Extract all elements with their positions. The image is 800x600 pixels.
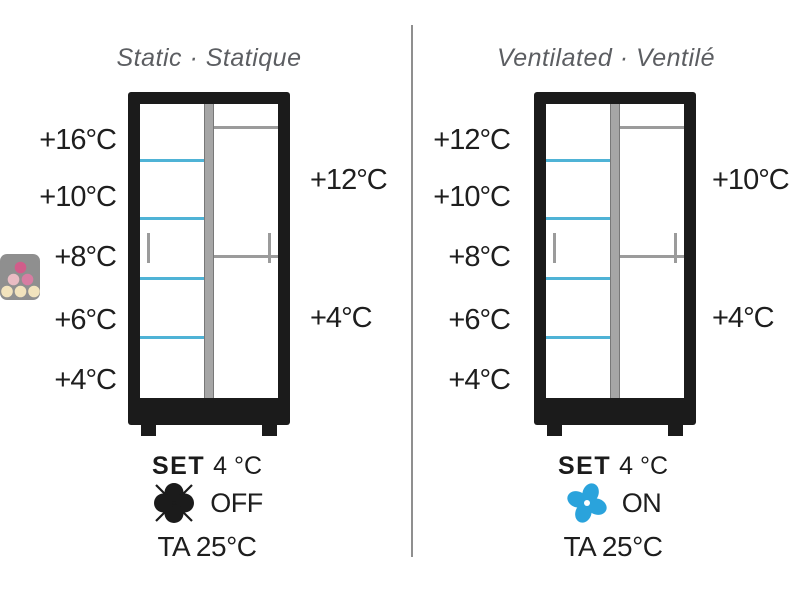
set-label: SET — [152, 452, 205, 480]
fan-state-label: OFF — [210, 488, 263, 519]
cabinet-foot — [141, 425, 156, 436]
fan-status: ON — [503, 480, 723, 526]
set-value: 4 °C — [213, 452, 262, 480]
temp-label: +4°C — [310, 303, 400, 333]
ambient-temperature: TA 25°C — [503, 531, 723, 563]
temp-label: +10°C — [412, 182, 510, 212]
cabinet-foot — [547, 425, 562, 436]
sliding-door-bar — [204, 104, 214, 398]
blue-shelf — [546, 159, 610, 162]
temp-label: +4°C — [412, 365, 510, 395]
grey-shelf — [214, 126, 278, 129]
temp-label: +10°C — [18, 182, 116, 212]
blue-shelf — [546, 277, 610, 280]
door-handle — [674, 233, 677, 263]
blue-shelf — [546, 336, 610, 339]
fan-status: OFF — [97, 480, 317, 526]
temp-label: +4°C — [18, 365, 116, 395]
set-temperature: SET4 °C — [97, 452, 317, 481]
temp-label: +10°C — [712, 165, 800, 195]
blue-shelf — [140, 159, 204, 162]
ambient-temperature: TA 25°C — [97, 531, 317, 563]
fan-on-icon — [565, 481, 609, 525]
temp-label: +6°C — [18, 305, 116, 335]
panel-title: Static · Statique — [89, 44, 329, 73]
wine-cabinet-ventilated — [534, 92, 696, 425]
blue-shelf — [546, 217, 610, 220]
cabinet-interior — [546, 104, 684, 398]
cabinet-foot — [668, 425, 683, 436]
set-temperature: SET4 °C — [503, 452, 723, 481]
set-label: SET — [558, 452, 611, 480]
blue-shelf — [140, 336, 204, 339]
grey-shelf — [620, 126, 684, 129]
blue-shelf — [140, 217, 204, 220]
temperature-zones-diagram: Static · Statique +16°C +10°C +8°C +6°C … — [0, 0, 800, 600]
temp-label: +6°C — [412, 305, 510, 335]
temp-label: +8°C — [412, 242, 510, 272]
fan-state-label: ON — [622, 488, 662, 519]
cabinet-interior — [140, 104, 278, 398]
temp-label: +16°C — [18, 125, 116, 155]
temp-label: +12°C — [310, 165, 400, 195]
fan-off-icon — [151, 480, 197, 526]
wine-cabinet-static — [128, 92, 290, 425]
set-value: 4 °C — [619, 452, 668, 480]
blue-shelf — [140, 277, 204, 280]
panel-title: Ventilated · Ventilé — [486, 44, 726, 73]
cabinet-foot — [262, 425, 277, 436]
temp-label: +12°C — [412, 125, 510, 155]
door-handle — [147, 233, 150, 263]
sliding-door-bar — [610, 104, 620, 398]
temp-label: +8°C — [18, 242, 116, 272]
door-handle — [268, 233, 271, 263]
temp-label: +4°C — [712, 303, 800, 333]
panel-divider — [411, 25, 413, 557]
door-handle — [553, 233, 556, 263]
